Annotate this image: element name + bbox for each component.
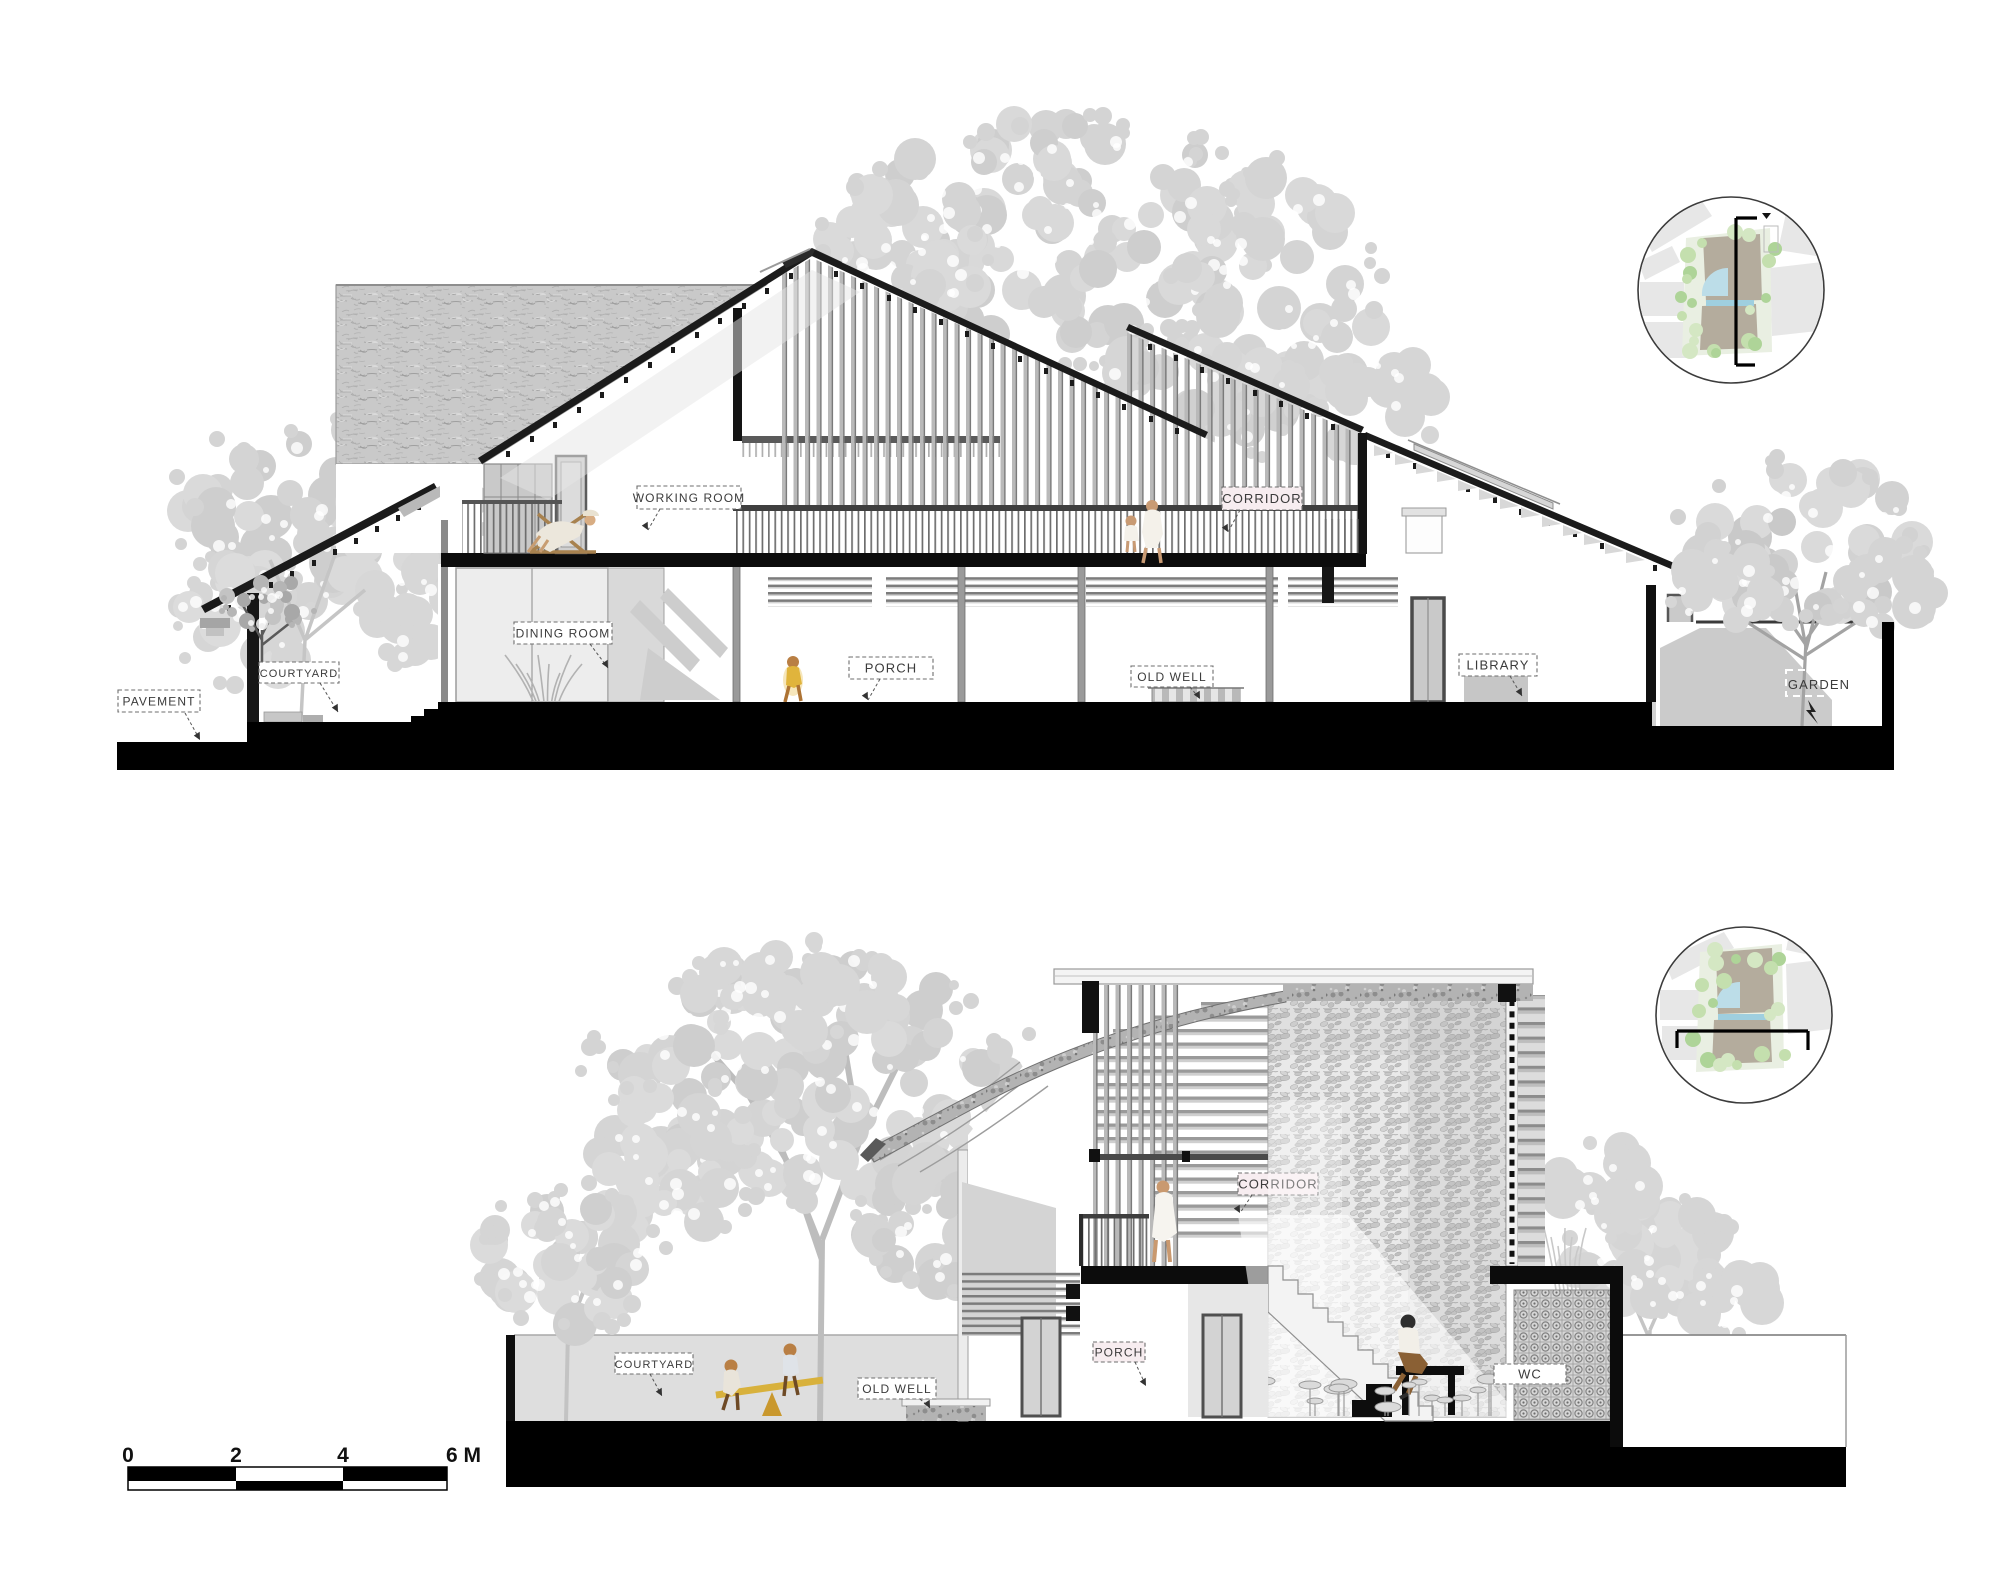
svg-text:WORKING ROOM: WORKING ROOM [633, 491, 746, 505]
svg-text:6 M: 6 M [446, 1444, 481, 1467]
svg-text:DINING ROOM: DINING ROOM [516, 627, 611, 641]
svg-text:0: 0 [122, 1444, 134, 1467]
svg-text:WC: WC [1518, 1367, 1542, 1382]
svg-text:COURTYARD: COURTYARD [260, 668, 339, 680]
svg-text:4: 4 [337, 1444, 349, 1467]
svg-text:OLD WELL: OLD WELL [1137, 670, 1207, 684]
svg-text:2: 2 [230, 1444, 242, 1467]
svg-text:CORRIDOR: CORRIDOR [1222, 491, 1302, 506]
svg-text:LIBRARY: LIBRARY [1466, 658, 1529, 673]
svg-text:GARDEN: GARDEN [1788, 677, 1850, 692]
svg-text:PORCH: PORCH [865, 661, 917, 676]
svg-text:OLD WELL: OLD WELL [862, 1382, 932, 1396]
svg-text:COURTYARD: COURTYARD [615, 1359, 694, 1371]
svg-text:PAVEMENT: PAVEMENT [122, 695, 195, 709]
svg-text:PORCH: PORCH [1095, 1346, 1144, 1360]
